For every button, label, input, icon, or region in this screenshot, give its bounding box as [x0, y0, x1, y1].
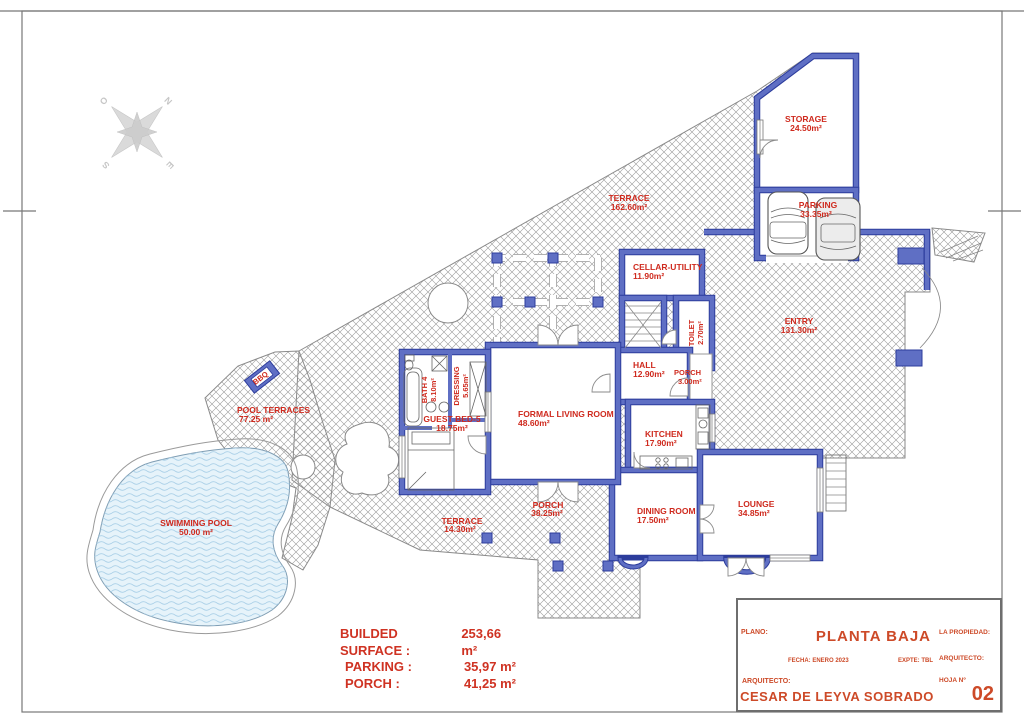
- room-bath4-label: BATH 4: [420, 376, 429, 403]
- gate-pillar: [898, 248, 924, 264]
- room-parking-area: 33.35m²: [800, 209, 832, 219]
- compass-w: O: [98, 95, 110, 107]
- compass-s: S: [100, 159, 111, 170]
- arquitecto-side-label: ARQUITECTO:: [939, 655, 984, 662]
- summary-row: PORCH : 41,25 m²: [340, 676, 516, 693]
- summary-value: 253,66 m²: [461, 626, 516, 659]
- empty-cell: [785, 646, 936, 657]
- room-bath4-area: 8.10m²: [429, 378, 438, 402]
- room-formal-living-area: 48.60m²: [518, 418, 550, 428]
- entry-steps-icon: [826, 455, 846, 511]
- gate-pillar: [896, 350, 922, 366]
- arquitecto-cell: ARQUITECTO: CESAR DE LEYVA SOBRADO: [738, 668, 936, 710]
- arquitecto-label: ARQUITECTO:: [742, 678, 790, 685]
- terrace-hatch: [205, 53, 985, 618]
- room-storage-area: 24.50m²: [790, 123, 822, 133]
- fecha-expte-cell: FECHA: ENERO 2023 EXPTE: TBL: [785, 657, 936, 668]
- sheet-number: 02: [972, 683, 994, 706]
- summary-row: BUILDED SURFACE : 253,66 m²: [340, 626, 516, 659]
- room-porch-hall-label: PORCH: [674, 368, 701, 377]
- compass-icon: N E S O: [86, 81, 188, 183]
- area-summary: BUILDED SURFACE : 253,66 m² PARKING : 35…: [340, 626, 516, 692]
- propiedad-cell: LA PROPIEDAD:: [936, 620, 1000, 646]
- summary-label: PORCH :: [340, 676, 400, 693]
- hoja-cell: HOJA Nº 02: [936, 668, 1000, 710]
- tree-icon: [428, 283, 468, 323]
- compass-e: E: [164, 159, 175, 170]
- plano-cell: PLANO: PLANTA BAJA: [738, 620, 936, 646]
- compass-n: N: [162, 95, 174, 107]
- room-toilet-area: 2.70m²: [696, 321, 705, 345]
- fecha-label: FECHA: ENERO 2023: [788, 658, 849, 667]
- room-guest-bed-area: 18.75m²: [436, 423, 468, 433]
- room-porch-hall-area: 3.00m²: [678, 377, 702, 386]
- hoja-label: HOJA Nº: [939, 677, 966, 684]
- empty-cell: [738, 646, 785, 668]
- room-dining-area: 17.50m²: [637, 515, 669, 525]
- room-kitchen-area: 17.90m²: [645, 438, 677, 448]
- room-hall-area: 12.90m²: [633, 369, 665, 379]
- title-block: PLANO: PLANTA BAJA FECHA: ENERO 2023 EXP…: [736, 598, 1002, 712]
- room-terrace-top-area: 162.60m²: [611, 202, 648, 212]
- propiedad-label: LA PROPIEDAD:: [939, 629, 990, 636]
- expte-label: EXPTE: TBL: [898, 658, 933, 667]
- sheet-title: PLANTA BAJA: [816, 628, 931, 645]
- plano-label: PLANO:: [741, 629, 768, 636]
- room-toilet-label: TOILET: [687, 319, 696, 346]
- room-entry-area: 131.30m²: [781, 325, 818, 335]
- room-swimming-pool-area: 50.00 m²: [179, 527, 213, 537]
- summary-label: BUILDED SURFACE :: [340, 626, 461, 659]
- room-lounge-area: 34.85m²: [738, 508, 770, 518]
- room-porch-bottom-area: 38.25m²: [531, 508, 563, 518]
- window-icon: [817, 468, 823, 512]
- summary-value: 41,25 m²: [464, 676, 516, 693]
- room-cellar-area: 11.90m²: [633, 271, 664, 281]
- room-dressing-area: 5.65m²: [461, 374, 470, 398]
- room-pool-terraces-area: 77.25 m²: [239, 414, 273, 424]
- drawing-sheet: N E S O: [0, 0, 1024, 724]
- room-dressing-label: DRESSING: [452, 366, 461, 405]
- summary-label: PARKING :: [340, 659, 412, 676]
- garden-rock-icon: [291, 455, 315, 479]
- window-icon: [399, 436, 405, 478]
- arquitecto-side-cell: ARQUITECTO:: [936, 646, 1000, 668]
- window-icon: [770, 555, 810, 561]
- summary-row: PARKING : 35,97 m²: [340, 659, 516, 676]
- architect-name: CESAR DE LEYVA SOBRADO: [738, 689, 936, 704]
- room-terrace-bottom-area: 14.30m²: [444, 524, 476, 534]
- title-block-top-strip: [738, 600, 1000, 620]
- summary-value: 35,97 m²: [464, 659, 516, 676]
